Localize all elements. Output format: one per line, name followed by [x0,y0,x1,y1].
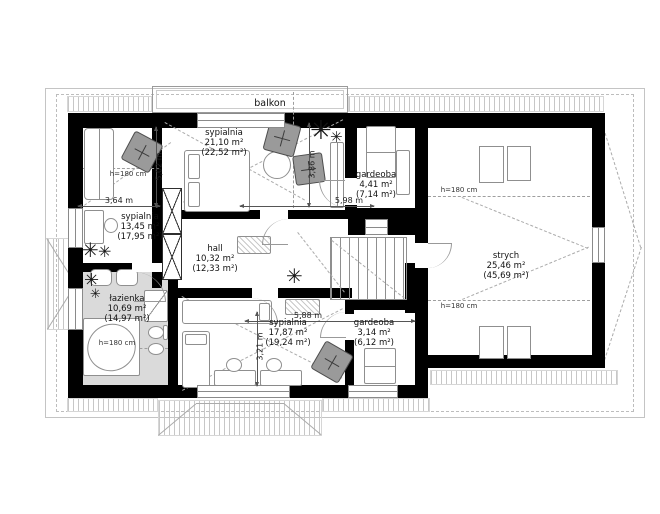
dim-label: 5,02 m [155,147,164,187]
pillow [185,334,207,345]
desk [214,370,256,386]
door-gap [252,288,278,298]
window-left-2 [68,288,83,330]
height-note: h=180 cm [431,186,487,194]
wall [285,113,605,128]
pillow [188,182,200,207]
eave-hatch-bottom-left [67,398,158,412]
balcony-door-window [197,113,285,128]
dim-line [78,206,160,207]
eave-hatch-bottom-mid [322,398,430,412]
wall [68,113,198,128]
skylight [507,326,531,359]
window-right [592,227,605,263]
door-gap [132,263,166,272]
desk [260,370,302,386]
eave-hatch-top-right [348,96,604,112]
eave-hatch-bottom-right [430,370,618,385]
wall-stairs-top [388,219,417,235]
plant-icon: ✳ [330,130,343,145]
floor-plan: balkon [0,0,660,514]
dormer-roof-bottom [158,400,322,436]
window-stairs [365,219,388,235]
plant-icon: ✳ [286,266,303,286]
dormer-ridge [196,403,284,404]
wall [68,113,83,398]
dim-line [240,206,374,207]
desk-chair [226,358,242,372]
window-bottom-1 [197,385,290,398]
room-label-sypialnia-13: sypialnia13,45 m²(17,95 m²) [105,212,175,242]
plant-icon: ✳ [98,244,111,260]
height-note: h=180 cm [431,302,487,310]
plant-icon: ✳ [310,118,332,144]
desk-chair [266,358,282,372]
bidet [148,343,164,355]
window-bottom-2 [348,385,398,398]
window-left-1 [68,208,83,248]
plant-icon: ✳ [82,240,99,260]
room-label-strych: strych25,46 m²(45,69 m²) [471,251,541,281]
wall-stairs-top [348,219,365,235]
door-gap [415,243,428,268]
room-label-hall: hall10,32 m²(12,33 m²) [180,244,250,274]
height-note: h=180 cm [100,170,156,178]
room-label-gardeoba-441: gardeoba4,41 m²(7,14 m²) [341,170,411,200]
eave-hatch-top-left [67,96,152,112]
wall-bathroom-right [168,263,178,398]
room-label-gardeoba-314: gardeoba3,14 m²(6,12 m²) [339,318,409,348]
toilet-tank [163,325,168,340]
door-gap [260,210,288,219]
wall-wardrobe2-top [345,300,417,310]
toilet [148,326,164,339]
sofa [84,128,114,200]
knee-wall-line [428,300,590,301]
skylight [507,146,531,181]
height-note: h=180 cm [89,339,145,347]
knee-wall-line [428,196,590,197]
dim-label: 3,64 m [69,196,169,205]
dim-label: 3,86 m [308,145,317,185]
wardrobe [364,348,396,384]
room-label-sypialnia-21: sypialnia21,10 m²(22,52 m²) [189,128,259,158]
wall [415,355,428,398]
room-label-sypialnia-17: sypialnia17,87 m²(19,24 m²) [253,318,323,348]
skylight [479,326,504,359]
wall-wardrobe-bottom [345,208,417,219]
skylight [479,146,504,183]
balcony-label: balkon [200,98,340,109]
room-label-lazienka: łazienka10,69 m²(14,97 m²) [92,294,162,324]
